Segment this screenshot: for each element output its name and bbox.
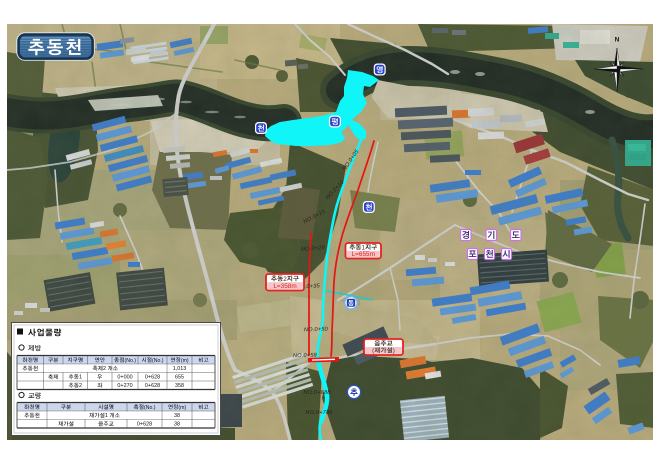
svg-text:655: 655 [175,375,184,381]
svg-text:2: 2 [283,276,287,283]
svg-text:NO.0+786: NO.0+786 [305,410,333,416]
svg-text:0+270: 0+270 [117,383,132,389]
svg-text:0+000: 0+000 [117,375,132,381]
svg-text:38: 38 [174,413,180,419]
svg-text:(No.): (No.) [144,405,156,411]
svg-text:(No.): (No.) [152,358,164,364]
svg-text:2: 2 [79,383,82,389]
svg-text:1: 1 [79,375,82,381]
svg-text:358: 358 [175,383,184,389]
svg-text:2: 2 [103,366,106,372]
svg-text:0+628: 0+628 [145,383,160,389]
svg-text:1: 1 [105,413,108,419]
svg-text:NO.0+688: NO.0+688 [303,390,331,396]
svg-text:L=655m: L=655m [352,251,375,258]
svg-text:0+628: 0+628 [145,375,160,381]
svg-text:1,013: 1,013 [173,366,187,372]
svg-text:(m): (m) [181,358,189,364]
svg-text:0+628: 0+628 [137,422,152,428]
svg-text:): ) [393,348,395,355]
svg-text:L=358m: L=358m [273,283,296,290]
svg-text:(No.): (No.) [124,358,136,364]
svg-text:38: 38 [174,422,180,428]
svg-text:NO.0+50: NO.0+50 [304,327,329,334]
svg-text:NO.0+58: NO.0+58 [293,353,318,360]
svg-text:(m): (m) [178,405,186,411]
svg-text:N: N [615,37,620,44]
